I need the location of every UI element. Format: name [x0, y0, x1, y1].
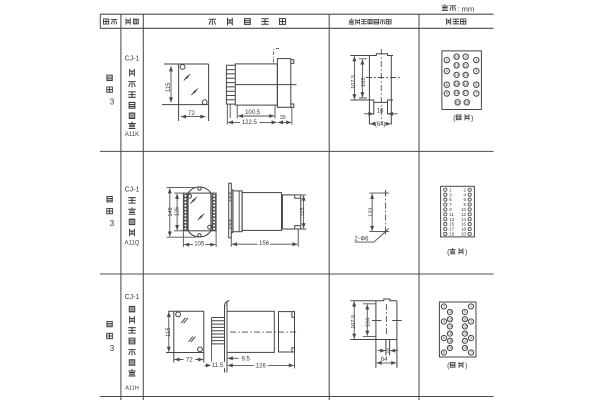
svg-text:14: 14: [455, 73, 459, 77]
svg-text:107.5: 107.5: [351, 315, 357, 329]
svg-text:18: 18: [448, 339, 452, 343]
svg-text:3: 3: [110, 344, 115, 353]
svg-text:6: 6: [446, 83, 448, 87]
svg-text:9.5: 9.5: [242, 356, 251, 362]
svg-text:15: 15: [463, 332, 467, 336]
svg-text:4: 4: [446, 69, 448, 73]
svg-text:9: 9: [465, 55, 467, 59]
svg-text:(64): (64): [375, 122, 386, 128]
svg-text:126: 126: [256, 363, 267, 369]
svg-text:17: 17: [463, 339, 467, 343]
svg-text:3: 3: [470, 320, 472, 324]
svg-text:11: 11: [464, 64, 468, 68]
svg-text:1: 1: [470, 305, 472, 309]
svg-text:16: 16: [455, 82, 459, 86]
svg-text:18: 18: [455, 91, 459, 95]
svg-text:64: 64: [381, 357, 388, 363]
svg-text:100.5: 100.5: [245, 110, 261, 116]
svg-text:CJ-1: CJ-1: [125, 294, 140, 301]
svg-text:9: 9: [464, 310, 466, 314]
svg-text:20: 20: [461, 232, 466, 237]
svg-text:3: 3: [475, 69, 477, 73]
svg-text:35: 35: [280, 115, 286, 121]
svg-text:115: 115: [166, 327, 172, 337]
svg-text:7: 7: [470, 351, 472, 355]
svg-text:A11K: A11K: [125, 132, 139, 138]
svg-text:A11H: A11H: [125, 386, 139, 392]
svg-text:Φ6: Φ6: [360, 237, 369, 243]
svg-text:7: 7: [475, 92, 477, 96]
svg-text:122.5: 122.5: [242, 120, 258, 126]
svg-text:: mm: : mm: [457, 4, 474, 13]
svg-text:): ): [465, 249, 467, 256]
svg-text:107.5: 107.5: [351, 75, 357, 89]
svg-text:20: 20: [448, 346, 452, 350]
svg-text:133: 133: [368, 208, 374, 217]
svg-text:16: 16: [448, 332, 452, 336]
svg-text:10: 10: [455, 55, 459, 59]
svg-text:5: 5: [470, 336, 472, 340]
svg-text:19: 19: [449, 232, 454, 237]
svg-text:16: 16: [385, 348, 390, 354]
svg-text:11: 11: [463, 317, 467, 321]
svg-text:5: 5: [475, 83, 477, 87]
svg-text:115: 115: [166, 82, 172, 92]
svg-text:104: 104: [365, 318, 371, 327]
svg-text:): ): [465, 363, 467, 370]
svg-text:8: 8: [443, 351, 445, 355]
svg-text:72: 72: [188, 111, 195, 117]
svg-text:149: 149: [168, 207, 174, 216]
svg-text:20: 20: [456, 101, 460, 105]
svg-text:CJ-1: CJ-1: [125, 56, 140, 63]
svg-text:): ): [471, 115, 473, 122]
svg-text:15: 15: [464, 82, 468, 86]
svg-text:19: 19: [463, 346, 467, 350]
svg-text:105: 105: [194, 241, 205, 247]
svg-text:1: 1: [475, 58, 477, 62]
svg-text:125: 125: [175, 207, 181, 216]
svg-text:72: 72: [186, 357, 193, 363]
svg-text:115: 115: [300, 208, 306, 217]
svg-text:13: 13: [463, 325, 467, 329]
svg-text:3: 3: [110, 219, 115, 228]
svg-text:19: 19: [465, 101, 469, 105]
svg-text:12: 12: [455, 64, 459, 68]
svg-text:16: 16: [377, 109, 384, 115]
svg-text:105: 105: [361, 78, 367, 87]
svg-text:12: 12: [448, 317, 452, 321]
svg-text:156: 156: [259, 241, 270, 247]
svg-text:A11Q: A11Q: [125, 241, 140, 247]
svg-text:8: 8: [446, 92, 448, 96]
svg-text:4: 4: [443, 320, 445, 324]
svg-text:CJ-1: CJ-1: [125, 187, 140, 194]
svg-text:2-: 2-: [354, 237, 359, 243]
svg-text:2: 2: [443, 305, 445, 309]
svg-text:17: 17: [464, 91, 468, 95]
svg-text:6: 6: [443, 336, 445, 340]
svg-text:3: 3: [110, 98, 115, 107]
svg-text:11.5: 11.5: [212, 363, 224, 369]
svg-text:14: 14: [448, 325, 452, 329]
svg-text:2: 2: [446, 58, 448, 62]
svg-text:10: 10: [448, 310, 452, 314]
svg-text:13: 13: [464, 73, 468, 77]
